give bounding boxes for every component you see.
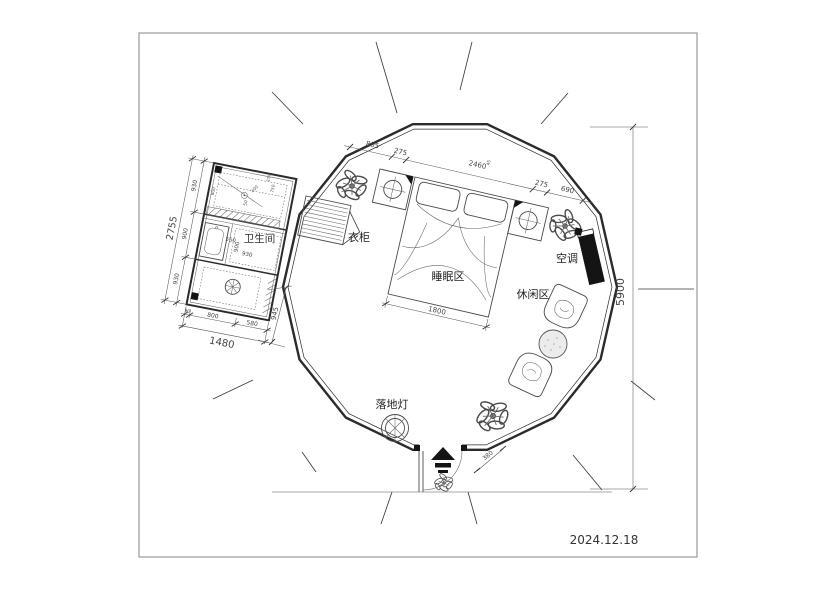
label-bathroom: 卫生间: [244, 232, 276, 245]
floor-lamp-symbol: [382, 415, 409, 442]
floorplan-canvas: 380 1800 睡眠区: [0, 0, 837, 592]
label-floor-lamp: 落地灯: [376, 398, 409, 411]
dim-label-5900: 5900: [614, 278, 627, 306]
drawing-date: 2024.12.18: [570, 533, 639, 547]
round-table: [539, 330, 567, 358]
label-wardrobe: 衣柜: [348, 230, 370, 244]
door-jamb: [461, 445, 467, 451]
door-jamb: [414, 445, 420, 451]
label-sleeping-area: 睡眠区: [432, 270, 465, 283]
label-air-conditioner: 空调: [556, 251, 578, 265]
label-leisure-area: 休闲区: [517, 287, 550, 301]
